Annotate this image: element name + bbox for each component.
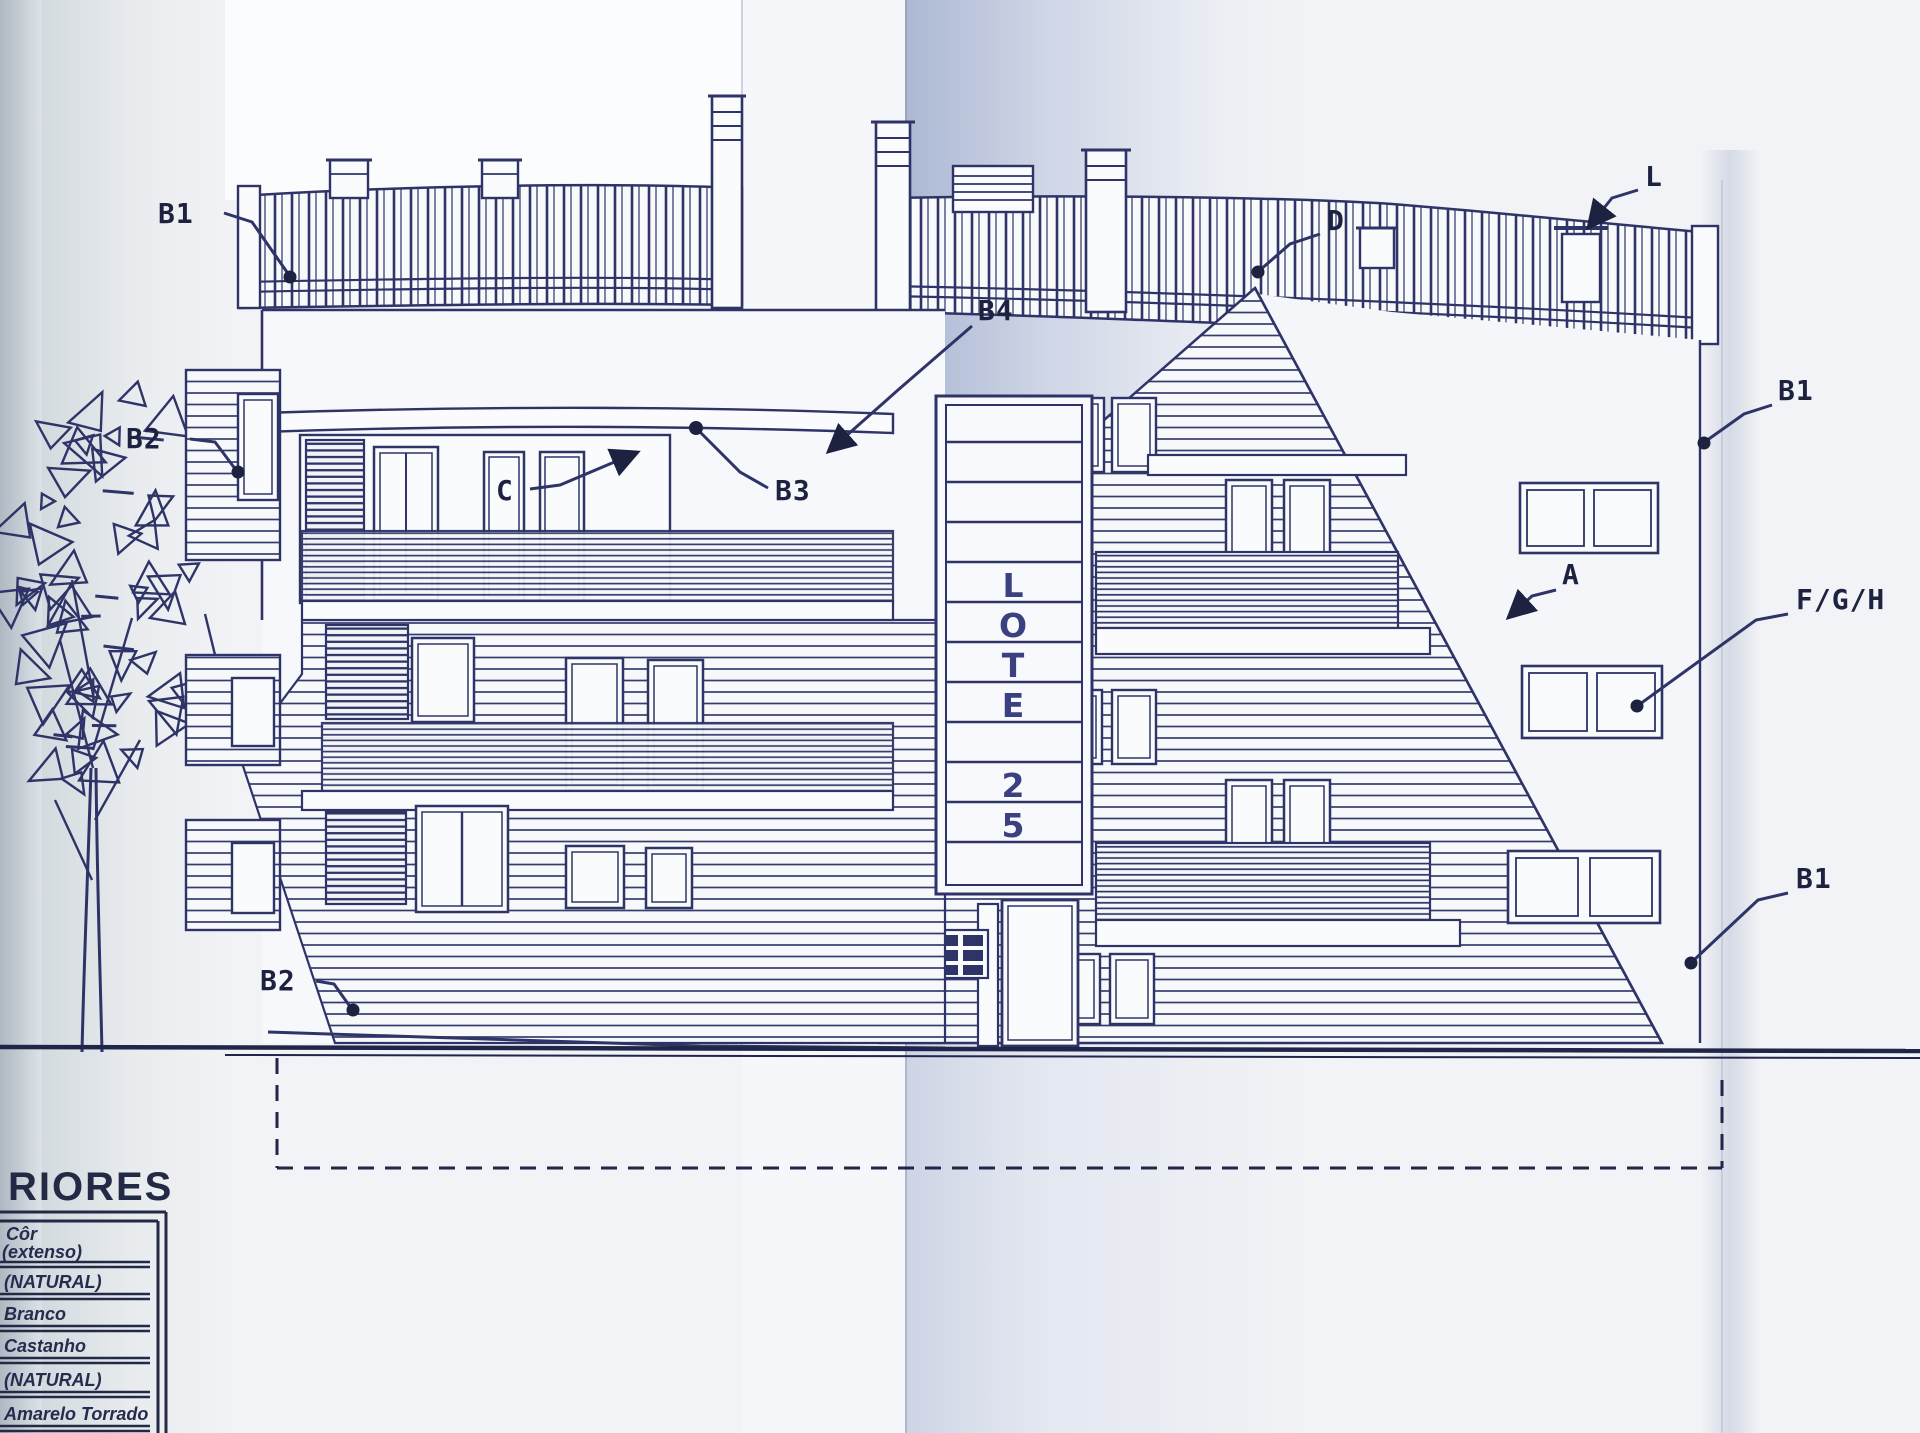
annex-box-3 bbox=[186, 820, 280, 930]
legend-row-natural-1: (NATURAL) bbox=[4, 1272, 102, 1292]
legend-table: RIORES Côr (extenso) (NATURAL) Branco Ca… bbox=[0, 1165, 173, 1433]
left-roof-end-post bbox=[238, 186, 260, 308]
chimney-tall-center bbox=[871, 122, 915, 312]
right-balcony-railing-1 bbox=[1096, 552, 1398, 628]
lote-sign: L O T E 2 5 bbox=[936, 396, 1092, 894]
legend-header-line1: Côr bbox=[6, 1224, 38, 1244]
roof-vent-grille bbox=[953, 166, 1033, 212]
legend-title: RIORES bbox=[8, 1165, 173, 1209]
callout-b1-right-label: B1 bbox=[1778, 374, 1814, 407]
chimney-small-1 bbox=[326, 160, 372, 198]
right-balcony-railing-2 bbox=[1096, 843, 1430, 920]
right-roof-end-post bbox=[1692, 226, 1718, 344]
legend-header-line2: (extenso) bbox=[2, 1242, 82, 1262]
callout-d-label: D bbox=[1327, 204, 1345, 237]
sign-letter-e: E bbox=[1002, 686, 1025, 725]
chimney-tall-right bbox=[1081, 150, 1131, 312]
leader-dot bbox=[1698, 437, 1711, 450]
callout-b2-bottom-label: B2 bbox=[260, 964, 296, 997]
right-wall-window-pair-3 bbox=[1508, 851, 1660, 923]
right-wall-window-pair-1 bbox=[1520, 483, 1658, 553]
balcony-slab-2 bbox=[302, 791, 893, 810]
sign-digit-2: 2 bbox=[1002, 766, 1025, 805]
louver-shutter-3 bbox=[326, 812, 406, 904]
leader-dot bbox=[347, 1004, 360, 1017]
callout-fgh-label: F/G/H bbox=[1796, 583, 1885, 616]
balcony-railing-1 bbox=[302, 531, 893, 601]
chimney-l bbox=[1554, 228, 1608, 302]
right-balcony-slab-1 bbox=[1096, 628, 1430, 654]
sign-digit-5: 5 bbox=[1002, 806, 1025, 845]
leader-dot bbox=[1252, 266, 1265, 279]
left-building bbox=[205, 310, 945, 1048]
scanned-elevation-drawing: L O T E 2 5 B1 B2 C B3 bbox=[0, 0, 1920, 1433]
lintel-bar bbox=[1148, 455, 1406, 475]
callout-a-label: A bbox=[1562, 558, 1580, 591]
legend-row-branco: Branco bbox=[4, 1304, 66, 1324]
callout-l-label: L bbox=[1645, 160, 1663, 193]
right-balcony-slab-2 bbox=[1096, 920, 1460, 946]
legend-row-castanho: Castanho bbox=[4, 1336, 86, 1356]
leader-dot bbox=[1631, 700, 1644, 713]
balcony-railing-2 bbox=[322, 723, 893, 791]
elevation-svg: L O T E 2 5 B1 B2 C B3 bbox=[0, 0, 1920, 1433]
callout-b1-top-left-label: B1 bbox=[158, 197, 194, 230]
leader-dot bbox=[284, 271, 297, 284]
sign-letter-o: O bbox=[999, 606, 1027, 645]
callout-b4-label: B4 bbox=[978, 294, 1014, 327]
entrance-door bbox=[1002, 900, 1078, 1046]
legend-row-amarelo-torrado: Amarelo Torrado bbox=[3, 1404, 148, 1424]
double-door-floor3 bbox=[416, 806, 508, 912]
callout-b1-bottom-right-label: B1 bbox=[1796, 862, 1832, 895]
callout-c-label: C bbox=[496, 474, 514, 507]
chimney-small-3 bbox=[1356, 228, 1398, 268]
scanner-edge-shadow bbox=[0, 0, 42, 1433]
chimney-tall-left bbox=[708, 96, 746, 308]
sign-letter-l: L bbox=[1002, 566, 1023, 605]
annex-box-2 bbox=[186, 655, 280, 765]
leader-dot bbox=[689, 421, 703, 435]
balcony-slab-1 bbox=[302, 601, 893, 620]
legend-row-natural-2: (NATURAL) bbox=[4, 1370, 102, 1390]
sign-letter-t: T bbox=[1002, 646, 1025, 685]
callout-b2-left-label: B2 bbox=[126, 422, 162, 455]
leader-dot bbox=[1685, 957, 1698, 970]
window-floor2 bbox=[412, 638, 474, 722]
louver-shutter-2 bbox=[326, 625, 408, 719]
callout-b3-label: B3 bbox=[775, 474, 811, 507]
leader-dot bbox=[232, 466, 245, 479]
chimney-small-2 bbox=[478, 160, 522, 198]
